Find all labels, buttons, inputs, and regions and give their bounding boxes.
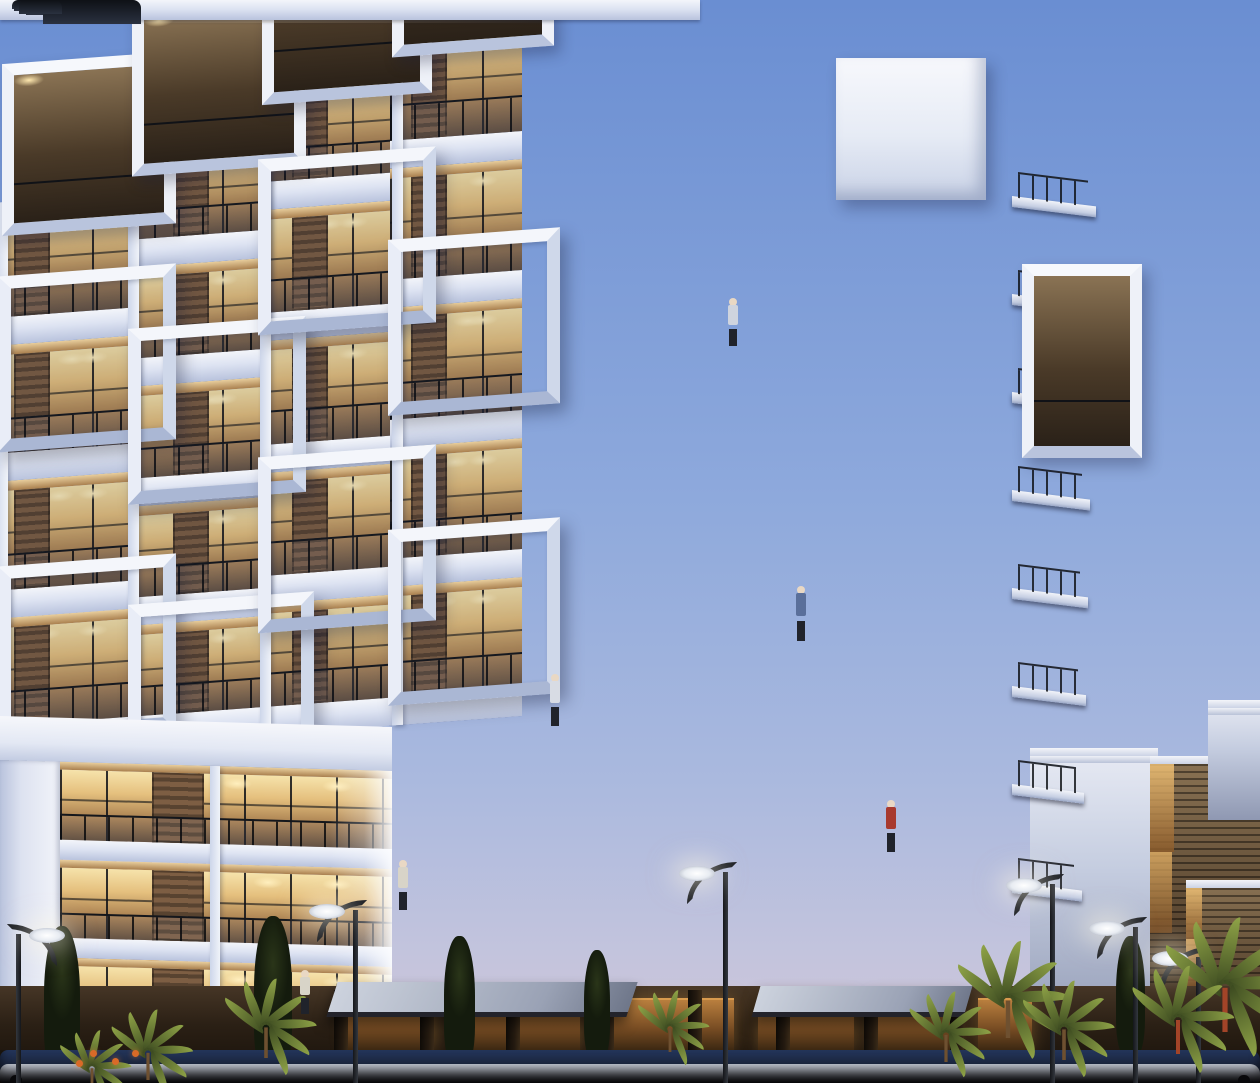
lamp-light-head — [29, 928, 65, 943]
palm-trunk — [1062, 1029, 1066, 1060]
parked-car — [0, 108, 64, 132]
lamp-light-head — [679, 866, 715, 881]
person-figure — [796, 586, 806, 641]
flower-bush-bloom — [112, 1058, 119, 1065]
palm-trunk — [264, 1027, 268, 1058]
palm-trunk — [944, 1035, 947, 1062]
palm-plant — [239, 995, 293, 1058]
car-wheel — [1238, 1075, 1249, 1083]
street-lamp — [309, 896, 361, 1083]
cypress-tree — [584, 950, 610, 1060]
person-torso — [728, 305, 738, 325]
parked-car — [0, 132, 86, 162]
person-figure — [398, 860, 408, 910]
parked-car — [0, 88, 54, 108]
flower-bush-bloom — [132, 1050, 139, 1057]
cypress-tree — [444, 936, 475, 1066]
palm-plant — [649, 1003, 691, 1052]
person-torso — [550, 681, 560, 703]
person-legs — [729, 329, 737, 346]
car-cabin — [19, 0, 62, 14]
person-torso — [300, 977, 310, 995]
person-legs — [301, 998, 309, 1014]
palm-plant — [922, 1006, 970, 1062]
person-figure — [728, 298, 738, 346]
lamp-light-head — [309, 904, 345, 919]
palm-trunk — [669, 1028, 672, 1052]
palm-trunk — [1006, 1001, 1010, 1038]
car-body — [0, 1064, 1260, 1083]
person-legs — [887, 833, 895, 852]
palm-trunk — [1176, 1020, 1180, 1054]
palm-trunk — [146, 1053, 149, 1080]
foreground-elements — [0, 0, 1260, 1083]
lamp-light-head — [1006, 878, 1042, 893]
person-legs — [399, 892, 407, 910]
person-torso — [796, 593, 806, 616]
street-lamp — [13, 920, 65, 1083]
palm-plant — [1148, 984, 1208, 1054]
person-torso — [398, 867, 408, 888]
person-torso — [886, 807, 896, 829]
palm-trunk — [1222, 988, 1227, 1032]
architectural-render-scene — [0, 0, 1260, 1083]
palm-plant — [975, 961, 1041, 1038]
flower-bush-bloom — [90, 1050, 97, 1057]
person-figure — [300, 970, 310, 1014]
lamp-light-head — [1089, 921, 1125, 936]
parked-car — [0, 34, 196, 88]
palm-trunk — [91, 1068, 94, 1083]
person-legs — [551, 707, 559, 726]
person-figure — [550, 674, 560, 726]
person-legs — [797, 621, 805, 641]
flower-bush-bloom — [76, 1060, 83, 1067]
palm-plant — [1037, 997, 1091, 1060]
person-figure — [886, 800, 896, 852]
